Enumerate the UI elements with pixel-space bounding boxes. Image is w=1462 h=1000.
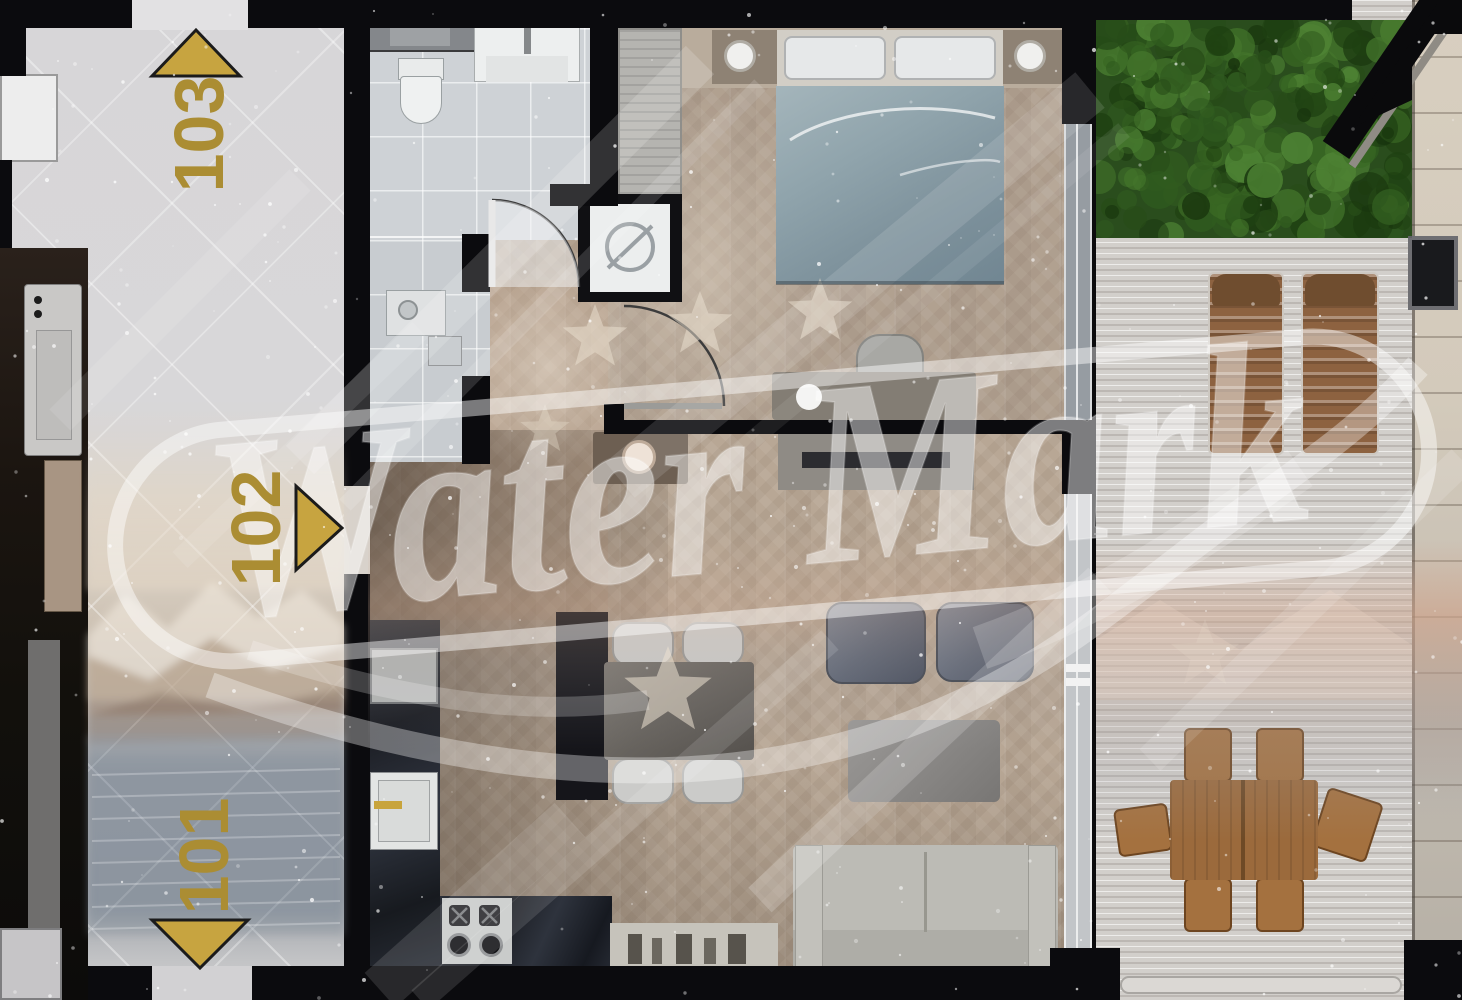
svg-text:103: 103 xyxy=(160,76,238,193)
svg-text:101: 101 xyxy=(165,798,243,915)
svg-text:102: 102 xyxy=(217,470,295,587)
